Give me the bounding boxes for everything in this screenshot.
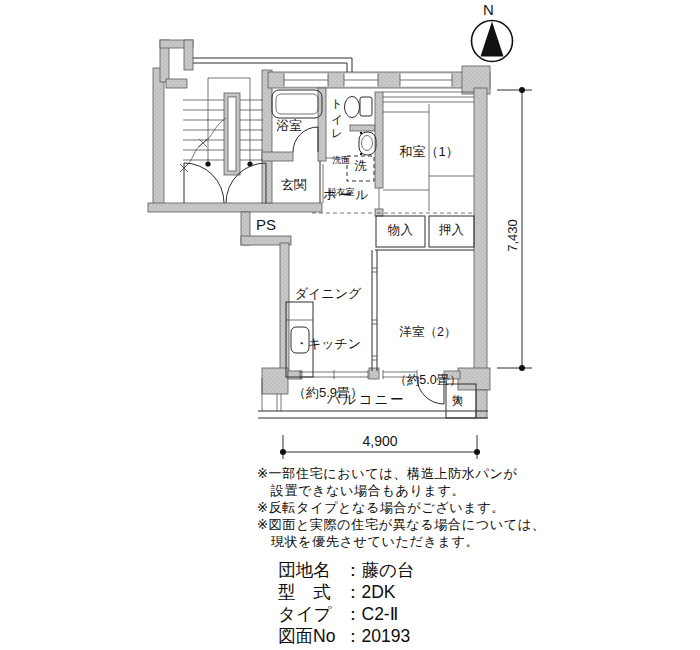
property-row-type: 型 式：2DK bbox=[278, 581, 414, 603]
top-wall-windows bbox=[284, 74, 452, 87]
room-label-washroom: 洗面 脱衣室 bbox=[324, 134, 358, 218]
stair-direction-arrow bbox=[184, 118, 226, 168]
room-label-balcony: バルコニー bbox=[327, 391, 406, 409]
dimension-height-label: 7,430 bbox=[505, 210, 520, 262]
property-row-drawing-no: 図面No：20193 bbox=[278, 625, 414, 647]
room-label-japanese-room: 和室（1） bbox=[388, 143, 470, 161]
room-label-balcony-storage: 物入 bbox=[451, 386, 465, 418]
floorplan-page: N 浴室 トイレ 洗面 脱衣室 洗 和室（1） 玄関 ホール PS 物入 押入 … bbox=[0, 0, 700, 650]
room-label-bath: 浴室 bbox=[276, 117, 302, 135]
note-line: ※一部住宅においては、構造上防水パンが bbox=[257, 466, 545, 483]
toilet-icon bbox=[345, 97, 360, 118]
note-line: ※反転タイプとなる場合がございます。 bbox=[257, 500, 545, 517]
room-label-storage1: 物入 bbox=[376, 222, 425, 239]
note-line: ※図面と実際の住宅が異なる場合については、 bbox=[257, 517, 545, 534]
note-line: 現状を優先させていただきます。 bbox=[257, 534, 545, 551]
notes-block: ※一部住宅においては、構造上防水パンが 設置できない場合もあります。 ※反転タイ… bbox=[257, 466, 545, 551]
room-label-hall: ホール bbox=[323, 186, 372, 204]
property-row-danchi: 団地名：藤の台 bbox=[278, 559, 414, 581]
north-arrow-icon bbox=[472, 21, 513, 62]
dimension-width-label: 4,900 bbox=[330, 433, 430, 449]
door-arc bbox=[184, 163, 224, 203]
property-info-block: 団地名：藤の台 型 式：2DK タイプ：C2-Ⅱ 図面No：20193 bbox=[278, 559, 414, 647]
note-line: 設置できない場合もあります。 bbox=[257, 483, 545, 500]
room-label-closet: 押入 bbox=[429, 222, 474, 239]
property-row-plan-type: タイプ：C2-Ⅱ bbox=[278, 603, 414, 625]
room-label-toilet: トイレ bbox=[329, 91, 344, 133]
dk-partition bbox=[372, 250, 377, 371]
room-label-entrance: 玄関 bbox=[281, 176, 307, 194]
compass-n-label: N bbox=[483, 1, 501, 18]
room-label-pipe-space: PS bbox=[248, 216, 284, 233]
room-label-washer: 洗 bbox=[347, 158, 374, 175]
